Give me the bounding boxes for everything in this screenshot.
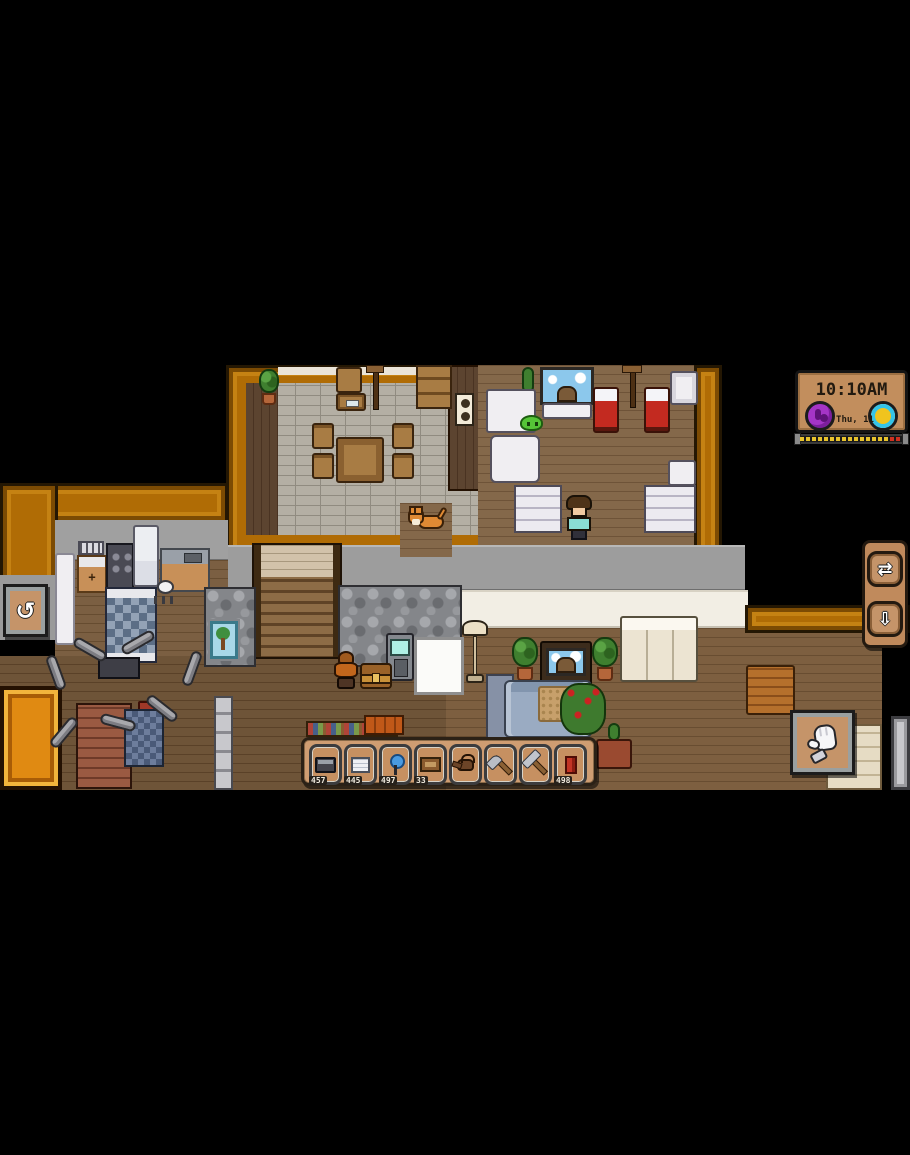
hotbar: 457 445 497 33 498 xyxy=(301,737,597,786)
lamp-base xyxy=(466,674,484,683)
wood-table-right xyxy=(746,665,795,715)
living-room-wall xyxy=(448,590,748,630)
blue-bed-basement xyxy=(124,709,164,767)
swap-tool-button[interactable]: ⇄ xyxy=(867,551,903,587)
furnace-item-icon xyxy=(315,757,336,773)
plant-pot xyxy=(262,393,276,405)
hotbar-slot-furnace[interactable]: 457 xyxy=(309,744,342,785)
hotbar-slot-lamp[interactable]: 497 xyxy=(379,744,412,785)
tv-screen xyxy=(546,648,586,676)
crate-item-icon xyxy=(420,757,441,772)
mirror-table xyxy=(336,393,366,411)
side-table xyxy=(596,739,632,769)
wood-cabinet xyxy=(416,365,452,409)
paper-stack-item-icon xyxy=(351,757,370,773)
red-bed xyxy=(593,387,619,433)
hotbar-slot-crate[interactable]: 33 xyxy=(414,744,447,785)
plant-leaves xyxy=(592,637,618,667)
side-button-panel: ⇄ ⇩ xyxy=(862,540,908,648)
hotbar-slot-watering-can[interactable] xyxy=(449,744,482,785)
plant-leaves xyxy=(259,369,279,393)
child-shirt xyxy=(567,517,591,531)
game-screen: 10:10AM Thu, 11 ⇄ ⇩ ↺ 457 445 xyxy=(0,0,910,1155)
axe-item-icon xyxy=(484,748,518,782)
dining-chair xyxy=(392,423,414,449)
child-npc[interactable] xyxy=(564,495,594,541)
hotbar-slot-axe[interactable] xyxy=(484,744,517,785)
dining-chair xyxy=(392,453,414,479)
hotbar-slot-red-chair[interactable]: 498 xyxy=(554,744,587,785)
kitchen-pillar xyxy=(55,553,75,645)
hotbar-slot-hammer[interactable] xyxy=(519,744,552,785)
potted-plant-dining xyxy=(258,369,280,413)
mirror xyxy=(346,400,359,407)
child-legs xyxy=(571,531,587,540)
red-chair-item-icon xyxy=(565,756,577,774)
child-face xyxy=(571,508,587,517)
game-world xyxy=(0,365,910,790)
kitchen-counter xyxy=(77,555,107,593)
hammer-item-icon xyxy=(519,748,553,782)
clock-widget: 10:10AM Thu, 11 xyxy=(795,370,908,433)
glove-icon xyxy=(801,720,844,765)
staircase xyxy=(254,545,340,657)
hotbar-slot-paper[interactable]: 445 xyxy=(344,744,377,785)
divider-wall xyxy=(448,365,480,491)
item-quantity: 497 xyxy=(379,776,397,785)
bedroom-right-wall xyxy=(694,365,722,561)
whiteboard xyxy=(414,637,464,695)
day-progress-red xyxy=(890,437,903,441)
coat-stand xyxy=(364,365,384,411)
plant-pot xyxy=(517,667,533,681)
clock-date: Thu, 11 xyxy=(835,415,875,425)
wooden-chest xyxy=(360,663,392,689)
white-shelf xyxy=(514,485,562,533)
watering-can-item-icon xyxy=(457,759,474,771)
lamp-shade xyxy=(462,620,488,636)
item-quantity: 445 xyxy=(344,776,362,785)
cream-dresser xyxy=(620,616,698,682)
rotate-ccw-icon: ↺ xyxy=(15,597,35,625)
red-bed xyxy=(644,387,670,433)
plant-pot xyxy=(597,667,613,681)
dark-dresser xyxy=(98,657,140,679)
clock-time: 10:10AM xyxy=(798,380,905,400)
robot-body xyxy=(157,580,174,594)
lamp-pole xyxy=(473,636,477,676)
cactus-side-table xyxy=(596,723,632,769)
tv-stand xyxy=(542,403,592,419)
coat-rack xyxy=(620,365,642,409)
dining-chair xyxy=(312,423,334,449)
gnome-beard xyxy=(334,662,358,678)
dining-chair xyxy=(312,453,334,479)
day-progress-bar xyxy=(797,434,906,444)
right-frame xyxy=(891,716,910,790)
orange-crate xyxy=(364,715,404,735)
item-quantity: 33 xyxy=(414,776,428,785)
pickup-arrow-icon: ⇩ xyxy=(877,609,892,630)
robot-helper[interactable] xyxy=(152,578,180,604)
tree-painting xyxy=(210,621,238,659)
wall-poster xyxy=(455,393,474,426)
rotate-button[interactable]: ↺ xyxy=(3,584,48,637)
slime-pet[interactable] xyxy=(520,415,543,431)
day-progress-fill xyxy=(800,437,890,441)
gnome-npc[interactable] xyxy=(332,651,360,693)
cat-chest-patch xyxy=(412,519,420,525)
dining-table xyxy=(336,437,384,483)
kitchen-stove xyxy=(106,543,134,593)
portrait-tv xyxy=(540,367,594,405)
white-table xyxy=(490,435,540,483)
item-quantity: 498 xyxy=(554,776,572,785)
gnome-body xyxy=(337,677,355,689)
bench xyxy=(336,367,362,393)
cat[interactable] xyxy=(408,507,446,537)
plant-leaves xyxy=(512,637,538,667)
action-button[interactable] xyxy=(790,710,855,775)
nightstand xyxy=(670,371,698,405)
white-shelf xyxy=(644,485,696,533)
moon-phase-icon xyxy=(805,401,835,431)
item-quantity: 457 xyxy=(309,776,327,785)
swap-arrows-icon: ⇄ xyxy=(877,559,892,580)
pickup-button[interactable]: ⇩ xyxy=(867,601,903,637)
potted-plant xyxy=(590,637,620,687)
kitchen-corner-wall xyxy=(0,483,58,587)
blue-lamp-item-icon xyxy=(390,754,402,776)
utensil-rack xyxy=(78,541,104,555)
white-box xyxy=(668,460,696,486)
stone-pillar xyxy=(214,696,233,790)
